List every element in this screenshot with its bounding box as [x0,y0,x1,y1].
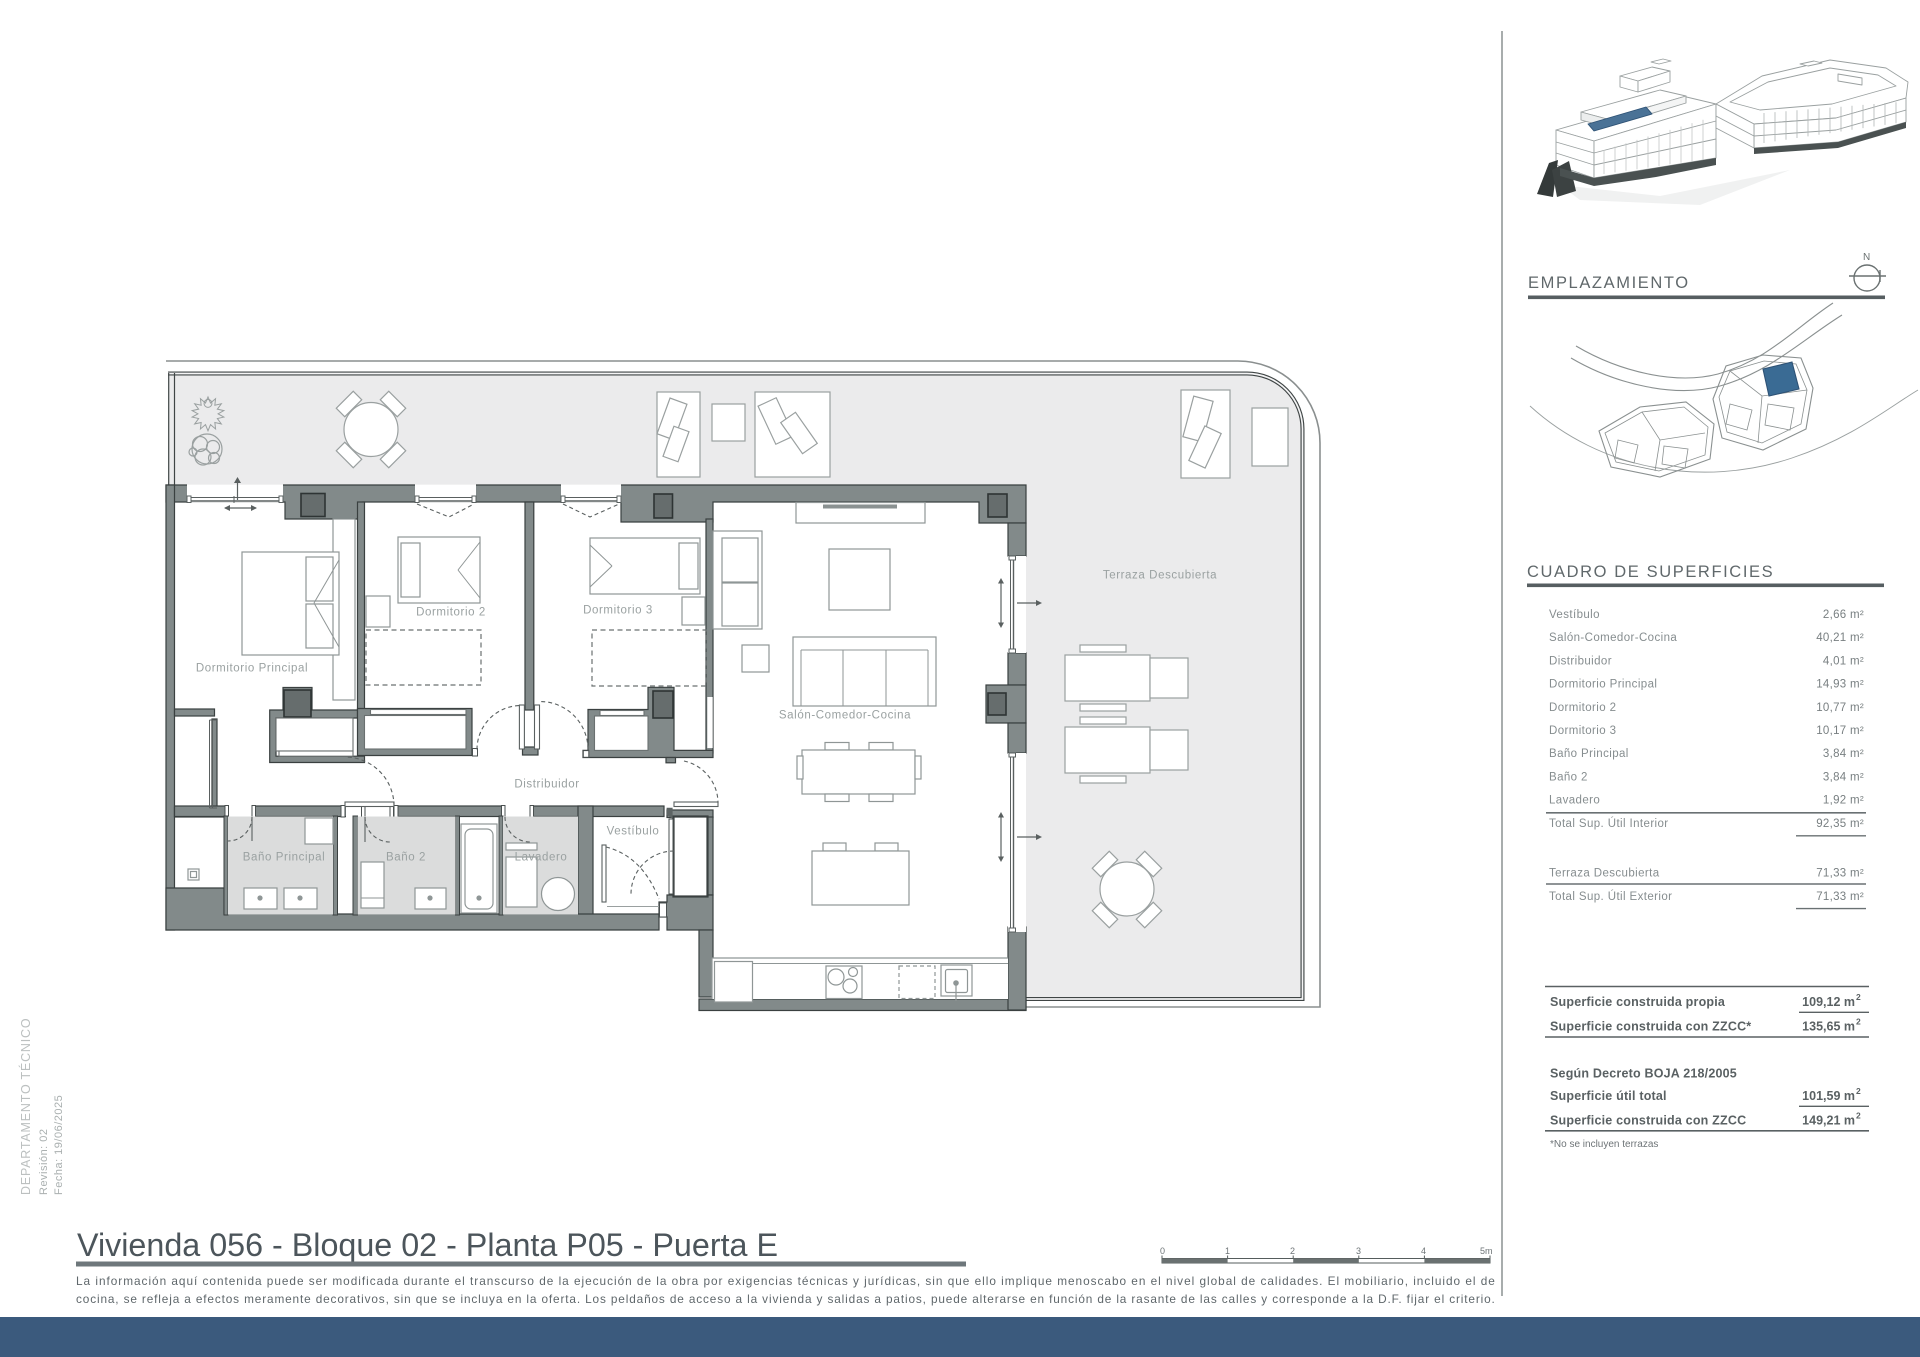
svg-text:N: N [1863,252,1870,263]
svg-text:Salón-Comedor-Cocina: Salón-Comedor-Cocina [779,710,911,722]
svg-text:10,17 m²: 10,17 m² [1816,725,1864,737]
svg-text:Salón-Comedor-Cocina: Salón-Comedor-Cocina [1549,632,1677,644]
svg-text:149,21 m: 149,21 m [1802,1114,1855,1128]
svg-text:Superficie construida con ZZCC: Superficie construida con ZZCC* [1550,1020,1751,1034]
svg-text:Superficie útil total: Superficie útil total [1550,1089,1667,1103]
svg-text:3: 3 [1356,1246,1361,1256]
svg-text:40,21 m²: 40,21 m² [1816,632,1864,644]
svg-text:1,92 m²: 1,92 m² [1823,795,1864,807]
svg-text:71,33 m²: 71,33 m² [1816,868,1864,880]
svg-text:Dormitorio 2: Dormitorio 2 [1549,702,1616,714]
svg-text:Dormitorio 3: Dormitorio 3 [583,605,653,617]
svg-text:101,59 m: 101,59 m [1802,1089,1855,1103]
svg-text:3,84 m²: 3,84 m² [1823,748,1864,760]
svg-text:Baño Principal: Baño Principal [243,852,326,864]
svg-text:EMPLAZAMIENTO: EMPLAZAMIENTO [1528,274,1690,292]
svg-text:Baño 2: Baño 2 [1549,771,1588,783]
svg-text:2: 2 [1856,1111,1861,1121]
svg-text:Dormitorio Principal: Dormitorio Principal [1549,679,1657,691]
svg-text:Distribuidor: Distribuidor [1549,655,1612,667]
svg-text:DEPARTAMENTO TÉCNICO: DEPARTAMENTO TÉCNICO [18,1018,33,1195]
svg-text:4,01 m²: 4,01 m² [1823,655,1864,667]
svg-text:4: 4 [1421,1246,1426,1256]
svg-text:92,35 m²: 92,35 m² [1816,818,1864,830]
svg-text:1: 1 [1225,1246,1230,1256]
svg-text:0: 0 [1160,1246,1165,1256]
svg-text:Baño Principal: Baño Principal [1549,748,1629,760]
svg-text:Vestíbulo: Vestíbulo [1549,609,1600,621]
svg-text:2,66 m²: 2,66 m² [1823,609,1864,621]
svg-text:2: 2 [1856,1086,1861,1096]
svg-text:Baño 2: Baño 2 [386,852,426,864]
svg-text:Lavadero: Lavadero [515,852,568,864]
svg-text:Fecha: 19/06/2025: Fecha: 19/06/2025 [53,1095,65,1195]
svg-text:CUADRO DE SUPERFICIES: CUADRO DE SUPERFICIES [1527,563,1774,581]
svg-text:Vestíbulo: Vestíbulo [607,826,660,838]
svg-text:Terraza Descubierta: Terraza Descubierta [1549,868,1660,880]
svg-text:La información aquí contenida: La información aquí contenida puede ser … [76,1274,1495,1288]
svg-text:3,84 m²: 3,84 m² [1823,771,1864,783]
svg-text:cocina, se refleja a efectos m: cocina, se refleja a efectos meramente d… [76,1292,1495,1306]
svg-text:Dormitorio 2: Dormitorio 2 [416,607,486,619]
svg-text:Dormitorio 3: Dormitorio 3 [1549,725,1616,737]
svg-text:Revisión: 02: Revisión: 02 [38,1128,50,1195]
svg-text:109,12 m: 109,12 m [1802,995,1855,1009]
svg-text:135,65 m: 135,65 m [1802,1020,1855,1034]
svg-text:Superficie construida con ZZCC: Superficie construida con ZZCC [1550,1114,1746,1128]
svg-text:14,93 m²: 14,93 m² [1816,679,1864,691]
svg-text:*No se incluyen terrazas: *No se incluyen terrazas [1550,1139,1658,1150]
svg-text:Dormitorio Principal: Dormitorio Principal [196,663,308,675]
svg-text:Total Sup. Útil Interior: Total Sup. Útil Interior [1549,817,1669,830]
svg-text:2: 2 [1856,992,1861,1002]
svg-text:Distribuidor: Distribuidor [514,779,579,791]
svg-text:Terraza Descubierta: Terraza Descubierta [1103,570,1217,582]
svg-text:Superficie construida propia: Superficie construida propia [1550,995,1726,1009]
svg-text:2: 2 [1856,1017,1861,1027]
svg-text:10,77 m²: 10,77 m² [1816,702,1864,714]
svg-text:71,33 m²: 71,33 m² [1816,891,1864,903]
svg-text:Según Decreto BOJA 218/2005: Según Decreto BOJA 218/2005 [1550,1067,1737,1081]
svg-text:5m: 5m [1480,1246,1493,1256]
svg-text:Total Sup. Útil Exterior: Total Sup. Útil Exterior [1549,890,1672,903]
svg-text:Lavadero: Lavadero [1549,795,1600,807]
svg-text:Vivienda 056 - Bloque 02 - Pla: Vivienda 056 - Bloque 02 - Planta P05 - … [77,1227,778,1263]
svg-text:2: 2 [1290,1246,1295,1256]
